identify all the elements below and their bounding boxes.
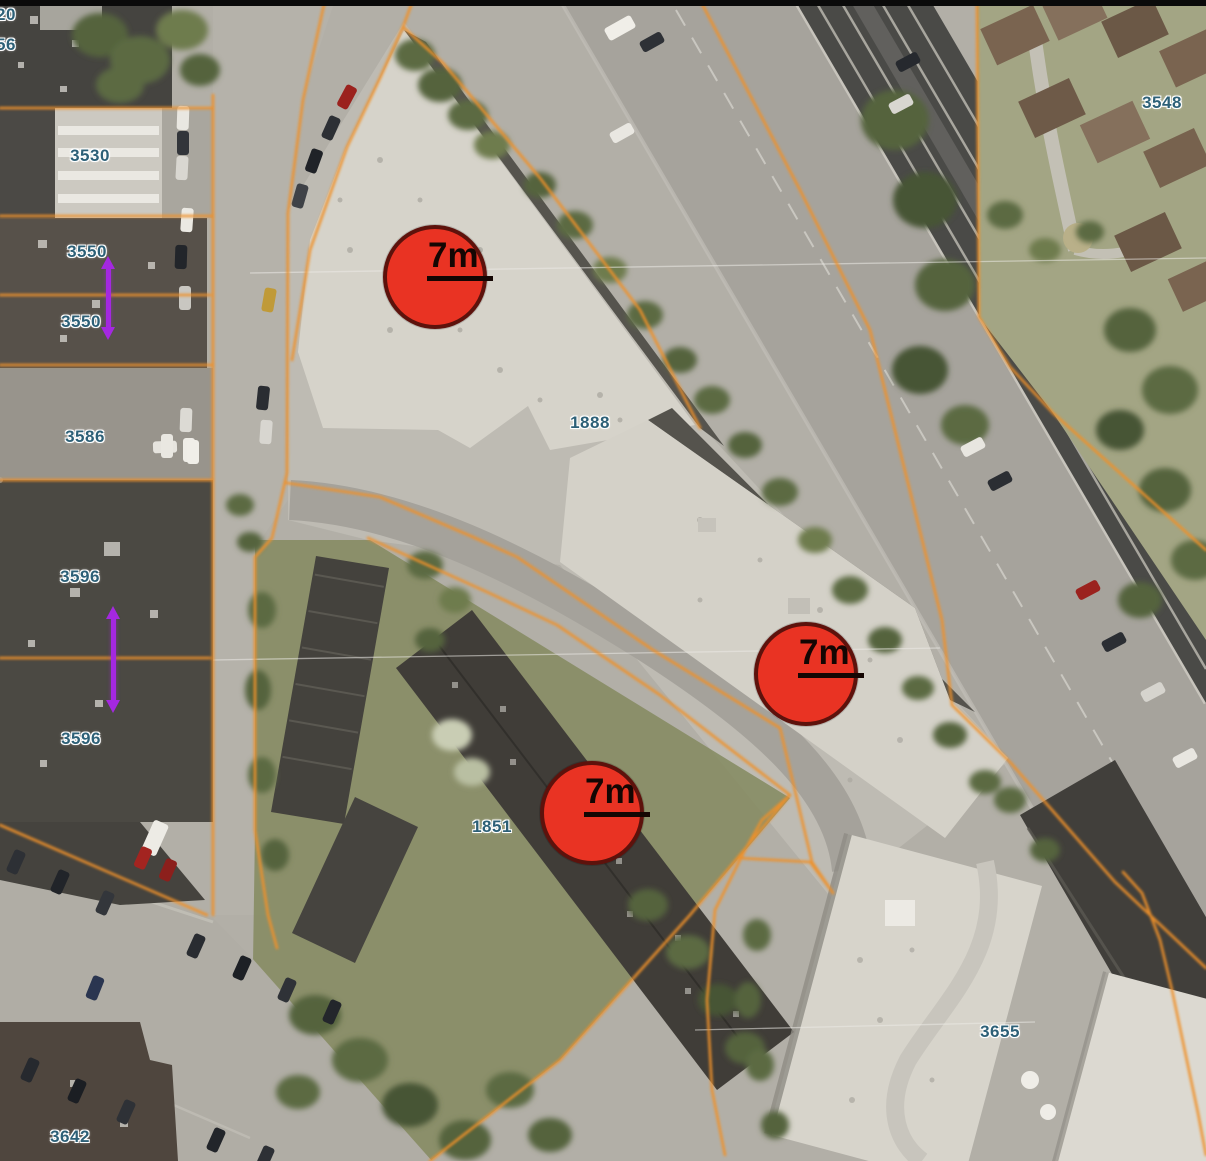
marker-label: 7m	[584, 773, 650, 817]
setback-marker[interactable]: 7m	[754, 622, 858, 726]
marker-label: 7m	[427, 237, 493, 281]
parcel-label: 20	[0, 5, 16, 25]
parcel-label: 3642	[50, 1127, 90, 1147]
setback-marker[interactable]: 7m	[540, 761, 644, 865]
parcel-label: 1851	[472, 817, 512, 837]
parcel-label: 3530	[70, 146, 110, 166]
marker-label: 7m	[798, 634, 864, 678]
map-viewport[interactable]: 2056353035503550358635963596364218881851…	[0, 0, 1206, 1161]
setback-marker[interactable]: 7m	[383, 225, 487, 329]
dimension-arrow	[106, 268, 111, 328]
annotation-overlay: 2056353035503550358635963596364218881851…	[0, 0, 1206, 1161]
parcel-label: 1888	[570, 413, 610, 433]
parcel-label: 3548	[1142, 93, 1182, 113]
parcel-label: 3596	[60, 567, 100, 587]
parcel-label: 3586	[65, 427, 105, 447]
parcel-label: 3596	[61, 729, 101, 749]
parcel-label: 3550	[61, 312, 101, 332]
dimension-arrow	[111, 618, 116, 701]
parcel-label: 3655	[980, 1022, 1020, 1042]
parcel-label: 56	[0, 35, 16, 55]
